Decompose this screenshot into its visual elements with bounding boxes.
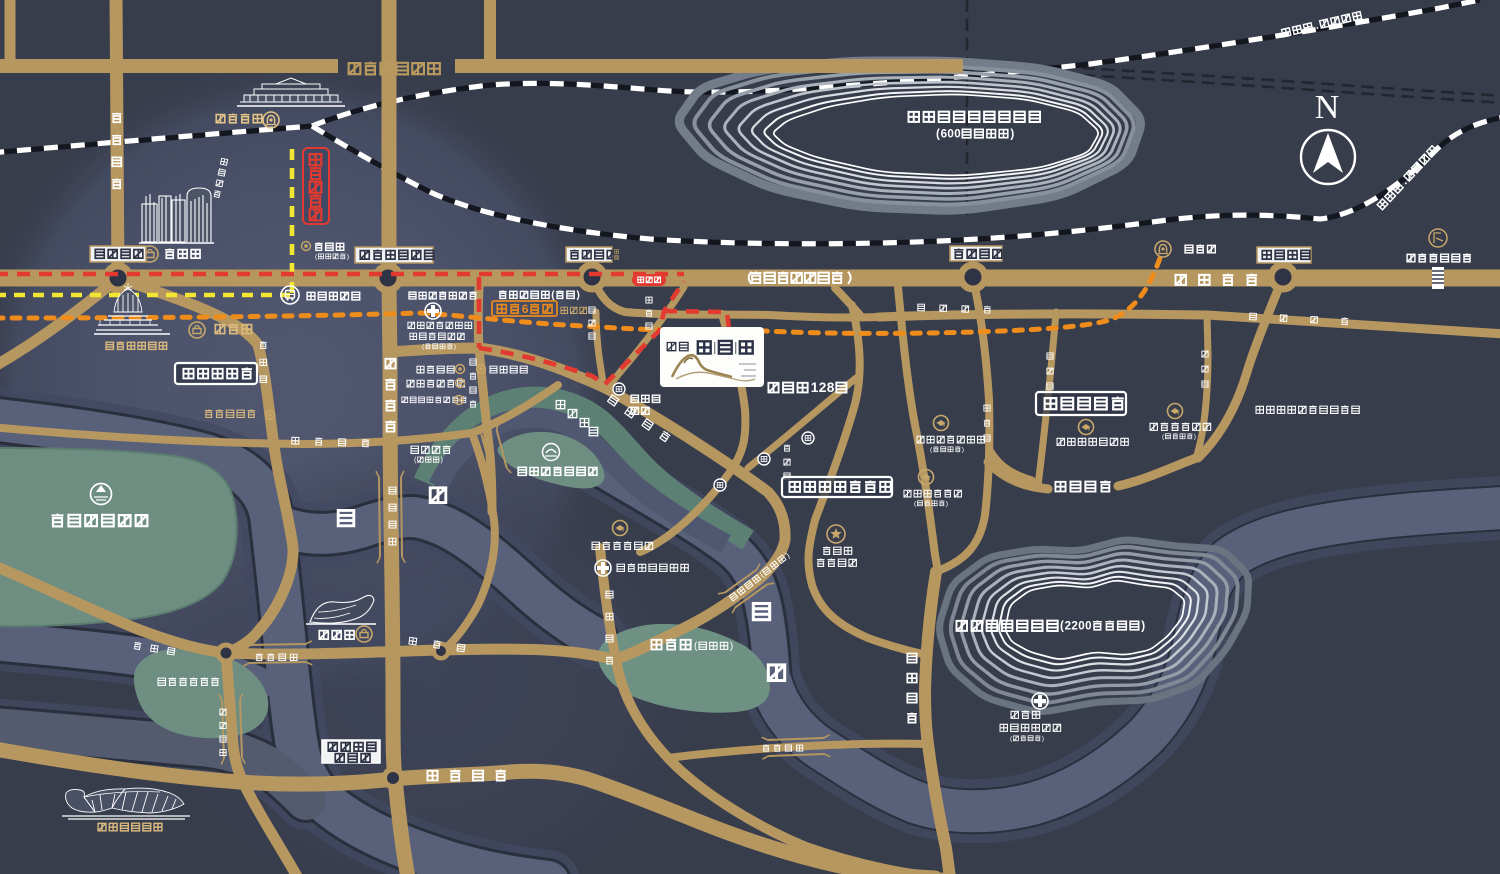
svg-text:2: 2 — [1071, 620, 1077, 633]
svg-text:8: 8 — [827, 380, 835, 395]
svg-text:N: N — [1315, 89, 1340, 126]
svg-text:): ) — [1194, 434, 1196, 441]
svg-text:): ) — [1042, 736, 1044, 743]
svg-text:2: 2 — [819, 380, 827, 395]
svg-text:): ) — [577, 290, 580, 301]
svg-text:): ) — [454, 344, 456, 351]
svg-text:): ) — [730, 641, 733, 652]
svg-text:): ) — [347, 254, 349, 261]
svg-text:): ) — [1010, 128, 1014, 141]
svg-text:0: 0 — [947, 128, 953, 141]
svg-text:0: 0 — [1085, 620, 1091, 633]
svg-text:0: 0 — [1078, 620, 1084, 633]
svg-text:): ) — [962, 447, 964, 454]
svg-text:0: 0 — [954, 128, 960, 141]
svg-text:): ) — [946, 501, 948, 508]
svg-text:6: 6 — [522, 302, 529, 316]
svg-text:): ) — [441, 455, 443, 464]
svg-text:): ) — [1141, 620, 1145, 633]
svg-text:2: 2 — [1065, 620, 1071, 633]
svg-text:(: ( — [1060, 620, 1064, 633]
svg-text:(: ( — [936, 128, 940, 141]
svg-text:1: 1 — [811, 380, 819, 395]
